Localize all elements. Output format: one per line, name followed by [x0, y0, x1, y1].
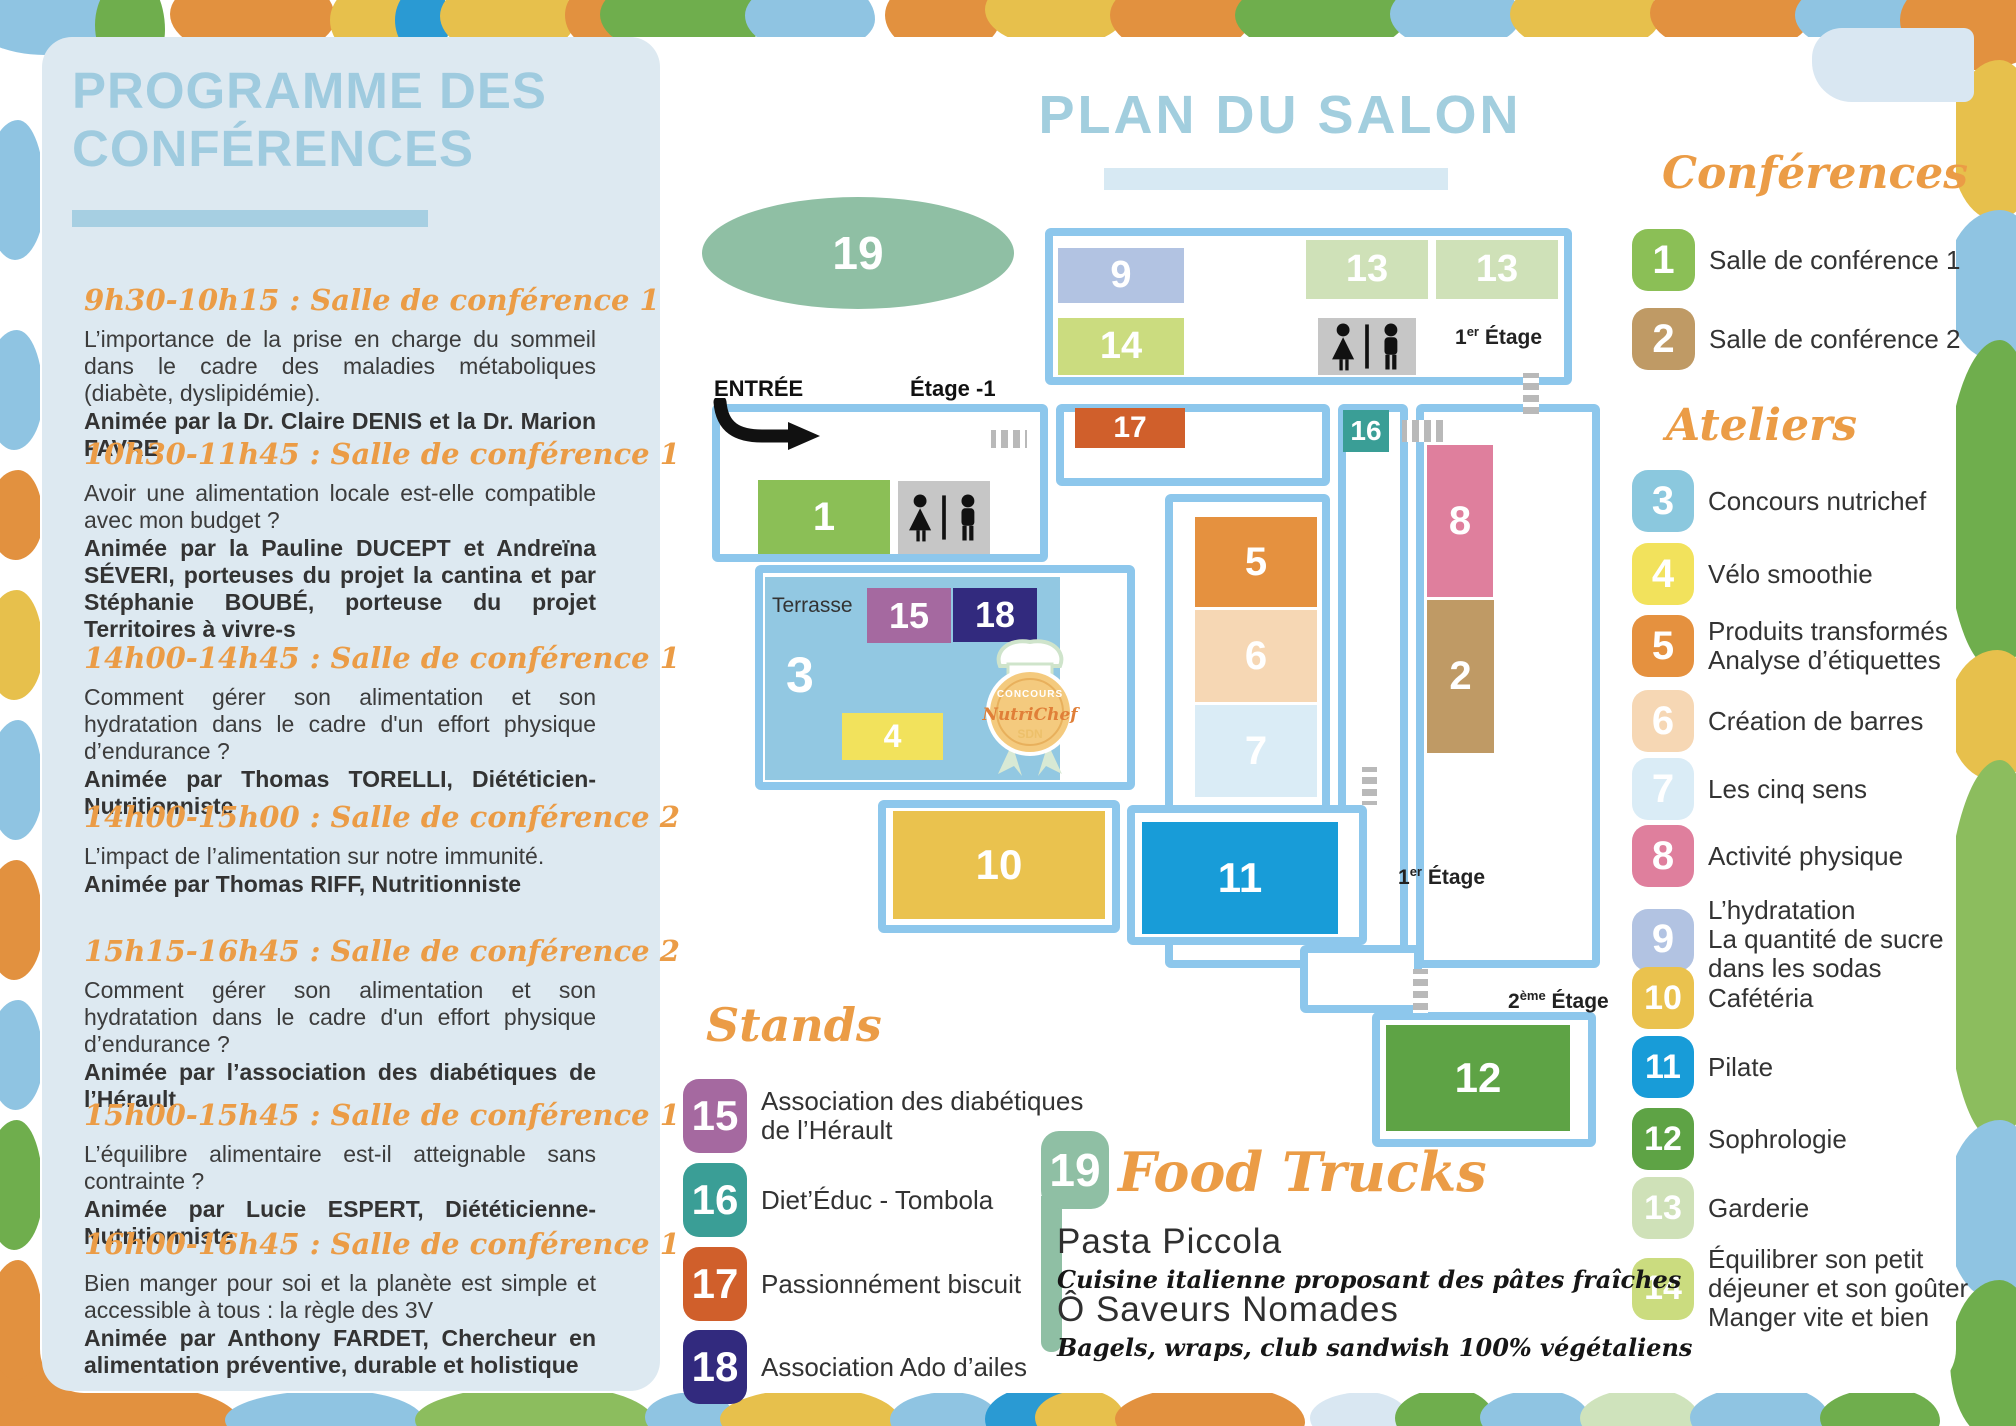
- corner-blob: [1812, 28, 1974, 102]
- session-item: 10h30-11h45 : Salle de conférence 1 Avoi…: [84, 437, 596, 643]
- legend-number-badge: 11: [1632, 1036, 1694, 1098]
- map-hall: [1300, 945, 1422, 1013]
- floor-num: 1: [1398, 866, 1410, 889]
- session-host: Animée par Anthony FARDET, Chercheur en …: [84, 1325, 596, 1379]
- border-blob: [0, 120, 45, 260]
- stairs-icon: [1517, 366, 1545, 423]
- truck-name: Ô Saveurs Nomades: [1057, 1290, 1692, 1330]
- legend-label: Les cinq sens: [1708, 775, 1867, 804]
- food-trucks-number: 19: [1041, 1131, 1109, 1209]
- badge-name-text: NutriChef: [981, 705, 1080, 725]
- legend-item: 6 Création de barres: [1632, 690, 1923, 752]
- legend-item: 1 Salle de conférence 1: [1632, 229, 1961, 291]
- map-room-r16: 16: [1343, 410, 1389, 452]
- map-title: PLAN DU SALON: [1000, 84, 1560, 146]
- floor-word: Étage: [1422, 866, 1485, 889]
- session-host: Animée par la Pauline DUCEPT et Andreïna…: [84, 535, 596, 643]
- session-host: Animée par Thomas RIFF, Nutritionniste: [84, 871, 596, 898]
- legend-number-badge: 10: [1632, 967, 1694, 1029]
- truck-description: Bagels, wraps, club sandwish 100% végéta…: [1057, 1333, 1692, 1362]
- floor1-label: 1er Étage: [1398, 864, 1485, 890]
- legend-label: Garderie: [1708, 1194, 1809, 1223]
- stairs-icon: [1395, 414, 1453, 448]
- map-room-r7: 7: [1195, 705, 1317, 797]
- floor-sup: er: [1410, 864, 1422, 879]
- map-room-r2: 2: [1427, 600, 1494, 753]
- border-blob: [0, 1120, 43, 1250]
- legend-number-badge: 8: [1632, 825, 1694, 887]
- legend-label: Association des diabétiques de l’Hérault: [761, 1087, 1083, 1145]
- legend-number-badge: 16: [683, 1163, 747, 1237]
- map-title-underline: [1104, 168, 1448, 190]
- programme-title-line2: CONFÉRENCES: [72, 120, 474, 178]
- legend-number-badge: 15: [683, 1079, 747, 1153]
- session-item: 9h30-10h15 : Salle de conférence 1 L’imp…: [84, 283, 596, 462]
- legend-label: Création de barres: [1708, 707, 1923, 736]
- session-description: Bien manger pour soi et la planète est s…: [84, 1270, 596, 1324]
- legend-label: Association Ado d’ailes: [761, 1353, 1027, 1382]
- map-room-r18: 18: [953, 588, 1037, 642]
- floor-minus1-label: Étage -1: [910, 376, 996, 402]
- floor-sup: er: [1467, 324, 1479, 339]
- session-item: 16h00-16h45 : Salle de conférence 1 Bien…: [84, 1227, 596, 1379]
- stairs-icon: [1356, 760, 1383, 812]
- session-time: 9h30-10h15 : Salle de conférence 1: [84, 283, 596, 317]
- programme-panel: PROGRAMME DES CONFÉRENCES 9h30-10h15 : S…: [42, 37, 660, 1391]
- entrance-arrow-icon: [712, 398, 826, 458]
- border-blob: [0, 590, 43, 700]
- legend-label: Vélo smoothie: [1708, 560, 1873, 589]
- legend-item: 2 Salle de conférence 2: [1632, 308, 1961, 370]
- conferences-heading: Conférences: [1662, 148, 1968, 199]
- stairs-icon: [1407, 962, 1434, 1020]
- legend-label: Diet’Éduc - Tombola: [761, 1186, 993, 1215]
- map-room-r5: 5: [1195, 517, 1317, 607]
- legend-label: Produits transformés Analyse d’étiquette…: [1708, 617, 1948, 675]
- legend-item: 3 Concours nutrichef: [1632, 470, 1926, 532]
- session-time: 15h15-16h45 : Salle de conférence 2: [84, 934, 596, 968]
- food-trucks-heading: Food Trucks: [1118, 1140, 1487, 1204]
- legend-number-badge: 2: [1632, 308, 1695, 370]
- legend-number-badge: 6: [1632, 690, 1694, 752]
- legend-label: Pilate: [1708, 1053, 1773, 1082]
- food-truck-item: Pasta PiccolaCuisine italienne proposant…: [1057, 1222, 1681, 1294]
- floor-word: Étage: [1546, 990, 1609, 1013]
- border-blob: [0, 330, 43, 450]
- border-blob: [225, 1390, 425, 1426]
- map-room-r11: 11: [1142, 822, 1338, 934]
- badge-sub-text: SDN: [1017, 727, 1042, 741]
- legend-number-badge: 18: [683, 1330, 747, 1404]
- legend-item: 5 Produits transformés Analyse d’étiquet…: [1632, 615, 1948, 677]
- legend-label: Passionnément biscuit: [761, 1270, 1021, 1299]
- legend-item: 10 Cafétéria: [1632, 967, 1814, 1029]
- legend-number-badge: 9: [1632, 909, 1694, 971]
- ateliers-heading: Ateliers: [1666, 400, 1857, 451]
- session-item: 14h00-15h00 : Salle de conférence 2 L’im…: [84, 800, 596, 898]
- legend-label: Sophrologie: [1708, 1125, 1847, 1154]
- border-blob: [1948, 650, 2016, 780]
- legend-number-badge: 3: [1632, 470, 1694, 532]
- session-description: L’équilibre alimentaire est-il atteignab…: [84, 1141, 596, 1195]
- session-time: 14h00-14h45 : Salle de conférence 1: [84, 641, 596, 675]
- wc-icon: [898, 481, 990, 554]
- session-description: Comment gérer son alimentation et son hy…: [84, 684, 596, 765]
- legend-number-badge: 7: [1632, 758, 1694, 820]
- map-room-r13a: 13: [1306, 240, 1428, 299]
- title-underline: [72, 210, 428, 227]
- map-room-r4: 4: [842, 713, 943, 760]
- room-3-number: 3: [786, 646, 814, 704]
- session-item: 14h00-14h45 : Salle de conférence 1 Comm…: [84, 641, 596, 820]
- border-blob: [1480, 1390, 1590, 1426]
- map-room-r9: 9: [1058, 248, 1184, 303]
- legend-number-badge: 17: [683, 1247, 747, 1321]
- legend-item: 11 Pilate: [1632, 1036, 1773, 1098]
- border-blob: [1820, 1388, 1940, 1426]
- legend-number-badge: 1: [1632, 229, 1695, 291]
- legend-number-badge: 5: [1632, 615, 1694, 677]
- legend-label: Salle de conférence 2: [1709, 325, 1961, 354]
- legend-item: 4 Vélo smoothie: [1632, 543, 1873, 605]
- floor-num: 1: [1455, 326, 1467, 349]
- legend-number-badge: 4: [1632, 543, 1694, 605]
- programme-title-line1: PROGRAMME DES: [72, 62, 547, 120]
- terrasse-label: Terrasse: [772, 594, 853, 618]
- session-description: Comment gérer son alimentation et son hy…: [84, 977, 596, 1058]
- session-description: L’impact de l’alimentation sur notre imm…: [84, 843, 596, 870]
- map-room-r6: 6: [1195, 610, 1317, 702]
- legend-item: 18 Association Ado d’ailes: [683, 1330, 1027, 1404]
- session-description: Avoir une alimentation locale est-elle c…: [84, 480, 596, 534]
- session-time: 16h00-16h45 : Salle de conférence 1: [84, 1227, 596, 1261]
- session-time: 15h00-15h45 : Salle de conférence 1: [84, 1098, 596, 1132]
- map-room-r13b: 13: [1436, 240, 1558, 299]
- session-description: L’importance de la prise en charge du so…: [84, 326, 596, 407]
- legend-item: 16 Diet’Éduc - Tombola: [683, 1163, 993, 1237]
- map-room-r17: 17: [1075, 408, 1185, 448]
- floor-num: 2: [1508, 990, 1520, 1013]
- nutrichef-badge: CONCOURS NutriChef SDN: [978, 636, 1082, 778]
- floor-word: Étage: [1479, 326, 1542, 349]
- floor2-label: 2ème Étage: [1508, 988, 1609, 1014]
- map-room-r19: 19: [702, 197, 1014, 309]
- map-room-r14: 14: [1058, 318, 1184, 375]
- legend-item: 12 Sophrologie: [1632, 1108, 1847, 1170]
- legend-item: 17 Passionnément biscuit: [683, 1247, 1021, 1321]
- legend-item: 15 Association des diabétiques de l’Héra…: [683, 1079, 1083, 1153]
- session-time: 14h00-15h00 : Salle de conférence 2: [84, 800, 596, 834]
- legend-label: Concours nutrichef: [1708, 487, 1926, 516]
- legend-label: Équilibrer son petit déjeuner et son goû…: [1708, 1245, 1968, 1332]
- border-blob: [1580, 1388, 1700, 1426]
- map-room-r12: 12: [1386, 1025, 1570, 1131]
- map-room-r10: 10: [893, 811, 1105, 919]
- floor1-label: 1er Étage: [1455, 324, 1542, 350]
- legend-label: Activité physique: [1708, 842, 1903, 871]
- map-room-r8: 8: [1427, 445, 1493, 597]
- floor-sup: ème: [1520, 988, 1546, 1003]
- stairs-icon: [984, 424, 1034, 454]
- legend-number-badge: 12: [1632, 1108, 1694, 1170]
- session-item: 15h15-16h45 : Salle de conférence 2 Comm…: [84, 934, 596, 1113]
- map-room-r1: 1: [758, 480, 890, 554]
- stands-heading: Stands: [706, 998, 882, 1052]
- border-blob: [0, 720, 43, 840]
- truck-name: Pasta Piccola: [1057, 1222, 1681, 1262]
- legend-label: Salle de conférence 1: [1709, 246, 1961, 275]
- border-blob: [0, 1000, 43, 1110]
- badge-top-text: CONCOURS: [997, 689, 1063, 700]
- legend-item: 8 Activité physique: [1632, 825, 1903, 887]
- wc-icon: [1318, 318, 1416, 375]
- flyer-page: PROGRAMME DES CONFÉRENCES 9h30-10h15 : S…: [0, 0, 2016, 1426]
- food-truck-item: Ô Saveurs NomadesBagels, wraps, club san…: [1057, 1290, 1692, 1362]
- legend-item: 7 Les cinq sens: [1632, 758, 1867, 820]
- border-blob: [0, 470, 43, 560]
- border-blob: [0, 860, 43, 980]
- map-room-r15: 15: [867, 588, 951, 643]
- legend-label: Cafétéria: [1708, 984, 1814, 1013]
- session-time: 10h30-11h45 : Salle de conférence 1: [84, 437, 596, 471]
